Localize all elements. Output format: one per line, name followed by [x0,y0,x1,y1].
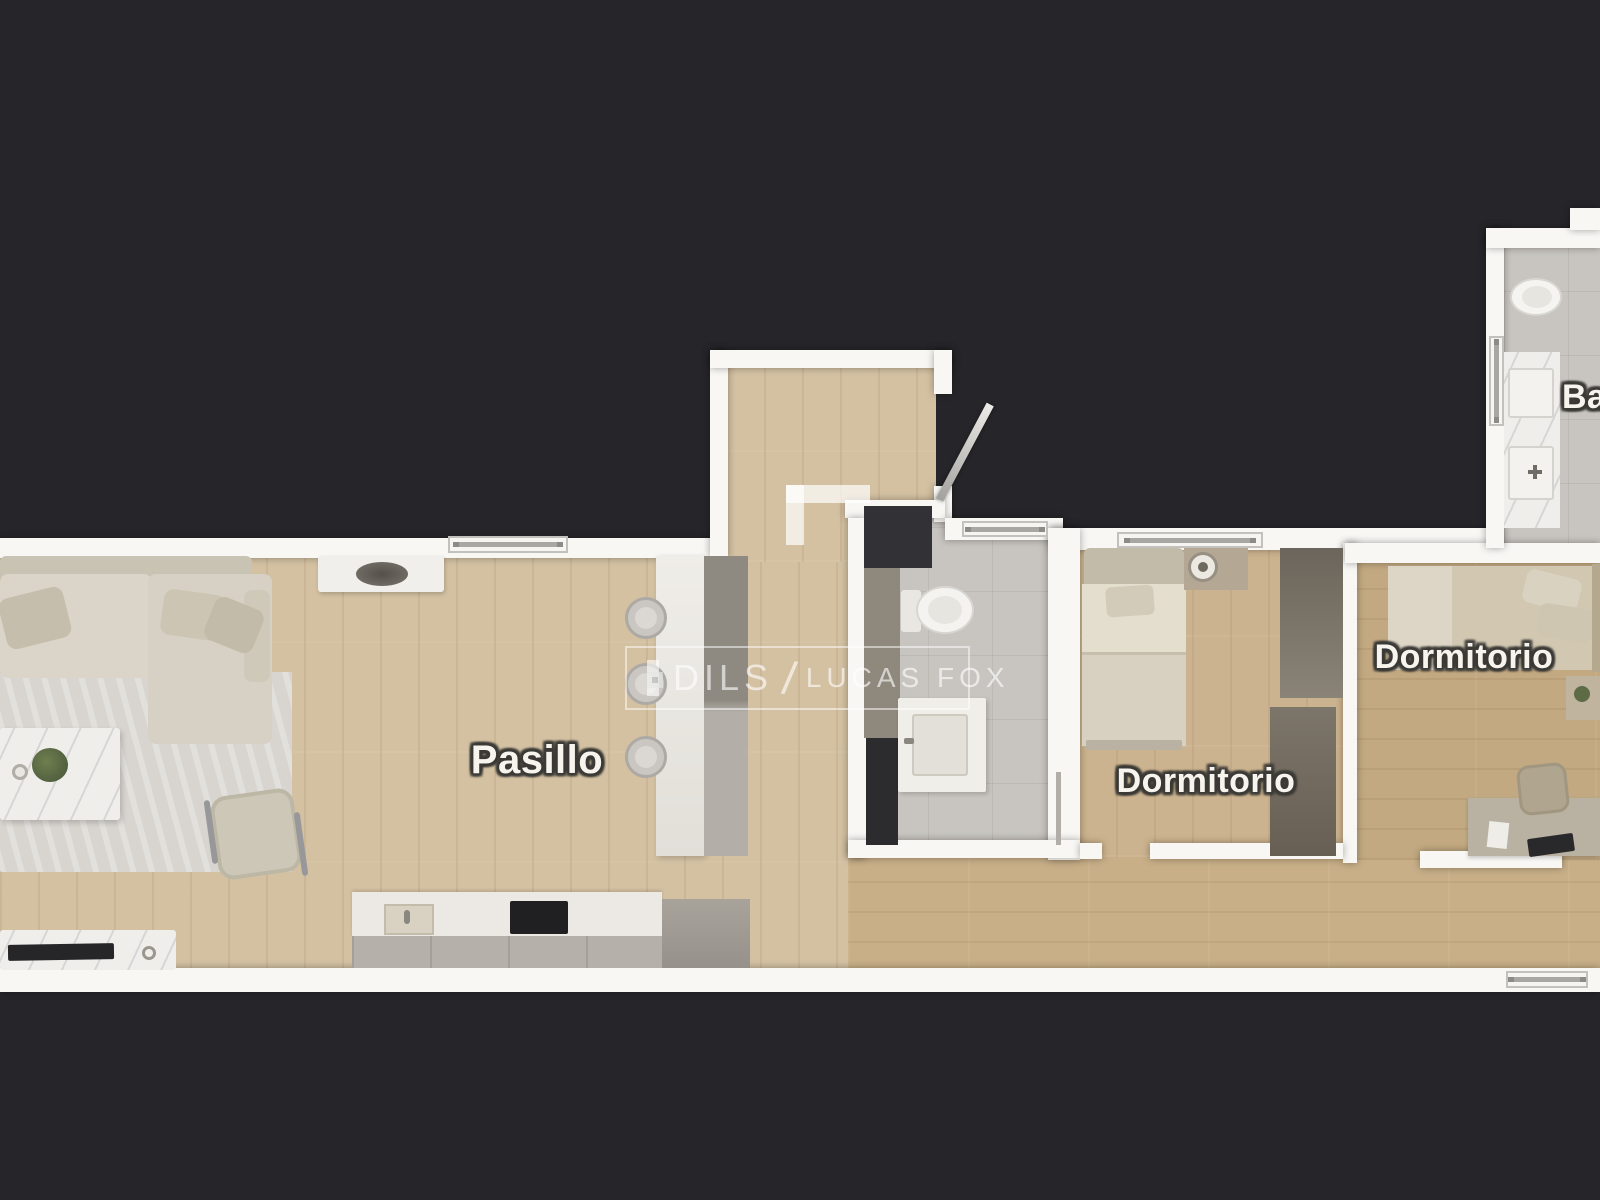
kitchen-faucet [404,910,410,924]
dils-logo-icon [647,660,659,696]
entry-wall-left [710,350,728,558]
bed-headboard [1084,548,1184,586]
floor-plan-canvas: Pasillo Dormitorio Dormitorio Ba DILS / … [0,0,1600,1200]
vanity-basin [912,714,968,776]
cup [12,764,28,780]
room-label-bedroom-middle: Dormitorio [1096,762,1316,801]
bed-headboard [1592,564,1600,672]
brand-separator: / [779,650,799,705]
brand-secondary: LUCAS FOX [806,662,1010,694]
bath-middle-dark-wall-top [864,506,932,568]
logo-bracket-watermark [786,485,804,545]
vanity-basin [1508,368,1554,418]
bath-middle-dark-band [866,738,898,845]
top-wall-left [0,538,712,558]
table-lamp-core [1198,562,1208,572]
cooktop [510,901,568,934]
bedrooms-divider-wall [1343,543,1357,863]
toilet-seat [1522,286,1552,308]
bottom-outer-wall [0,968,1600,992]
window-bottom-right [1506,971,1588,988]
window-bath-middle [962,521,1048,537]
vanity-faucet [904,738,914,744]
entry-door-leaf [936,403,994,502]
room-label-bedroom-right: Dormitorio [1354,638,1574,677]
window-bathroom-top [1489,336,1504,426]
decor-bowl [356,562,408,586]
bed-foot-frame [1086,740,1182,750]
entry-wall-right-upper [934,350,952,394]
bathroom-top-step-wall [1570,208,1600,230]
shower-glass [1056,772,1061,845]
window-living [448,536,568,553]
vanity-faucet [1533,465,1537,479]
brand-watermark: DILS / LUCAS FOX [625,646,970,710]
entry-wall-top [710,350,952,368]
toilet-seat [928,596,962,624]
armchair [209,787,304,882]
bedroom-middle-bottom-wall-a [1080,843,1102,859]
bar-stool [625,597,667,639]
desk-chair [1516,762,1571,817]
console-decor [142,946,156,960]
kitchen-cabinet-fronts [352,936,662,968]
bedroom-right-top-wall [1345,543,1600,563]
tv [8,943,114,961]
bath-bed-divider-wall [1048,528,1080,860]
bed-pillow [1105,584,1155,617]
window-bedroom-middle [1117,532,1263,548]
wardrobe-upper [1280,548,1343,698]
room-label-hallway: Pasillo [427,738,647,783]
plant-small [1574,686,1590,702]
kitchen-tall-cabinet [662,899,750,968]
room-label-bathroom-partial: Ba [1562,378,1600,417]
desk-paper [1487,821,1510,849]
brand-primary: DILS [673,657,773,699]
bathroom-top-top-wall [1486,228,1600,248]
plant [32,748,68,782]
bed-blanket [1082,652,1186,746]
corridor-floor [848,855,1600,973]
